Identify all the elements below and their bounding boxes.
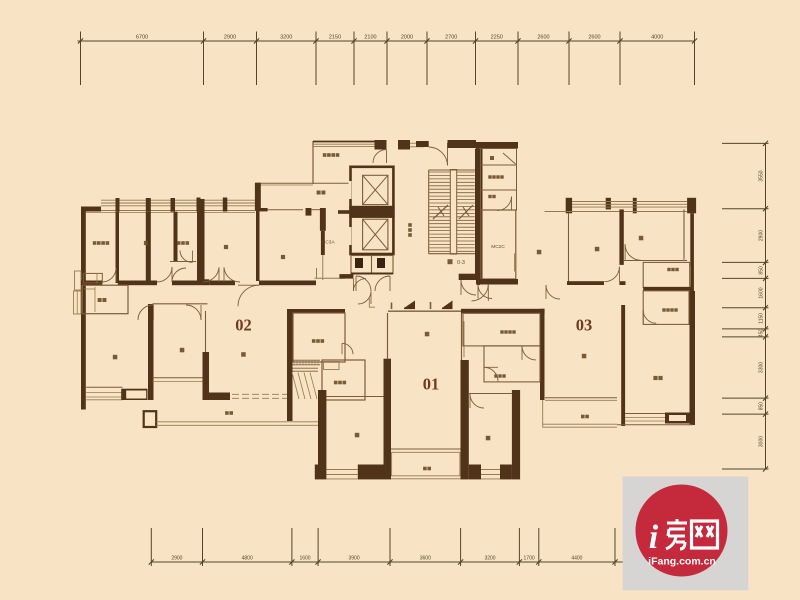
svg-text:2150: 2150 [329,35,341,41]
svg-text:6700: 6700 [136,35,148,41]
svg-text:1600: 1600 [299,556,310,562]
svg-text:2100: 2100 [364,35,376,41]
svg-text:450: 450 [759,329,765,338]
svg-text:3900: 3900 [348,556,359,562]
svg-text:3200: 3200 [280,35,292,41]
svg-text:4000: 4000 [651,35,663,41]
svg-text:02: 02 [235,316,252,335]
svg-text:2250: 2250 [491,35,503,41]
svg-text:3300: 3300 [759,362,765,373]
svg-text:850: 850 [759,266,765,275]
svg-text:1600: 1600 [759,287,765,298]
svg-text:MC3A: MC3A [321,240,335,246]
svg-text:MC2C: MC2C [491,244,505,250]
svg-text:0-3: 0-3 [457,260,465,266]
svg-text:1150: 1150 [759,313,765,324]
svg-text:03: 03 [576,316,593,335]
svg-text:2600: 2600 [588,35,600,41]
svg-text:2000: 2000 [401,35,413,41]
svg-text:4800: 4800 [242,556,253,562]
svg-text:2900: 2900 [224,35,236,41]
svg-text:2700: 2700 [445,35,457,41]
svg-text:3200: 3200 [484,556,495,562]
svg-text:3600: 3600 [420,556,431,562]
svg-text:2600: 2600 [537,35,549,41]
svg-text:2900: 2900 [171,556,182,562]
svg-text:850: 850 [759,402,765,411]
svg-text:3550: 3550 [759,170,765,181]
svg-text:iFang.com.cn: iFang.com.cn [648,556,716,568]
svg-text:i: i [649,519,659,556]
svg-text:2900: 2900 [759,230,765,241]
svg-text:3000: 3000 [759,436,765,447]
svg-text:01: 01 [423,375,440,394]
svg-text:1700: 1700 [524,556,535,562]
svg-text:4400: 4400 [571,556,582,562]
